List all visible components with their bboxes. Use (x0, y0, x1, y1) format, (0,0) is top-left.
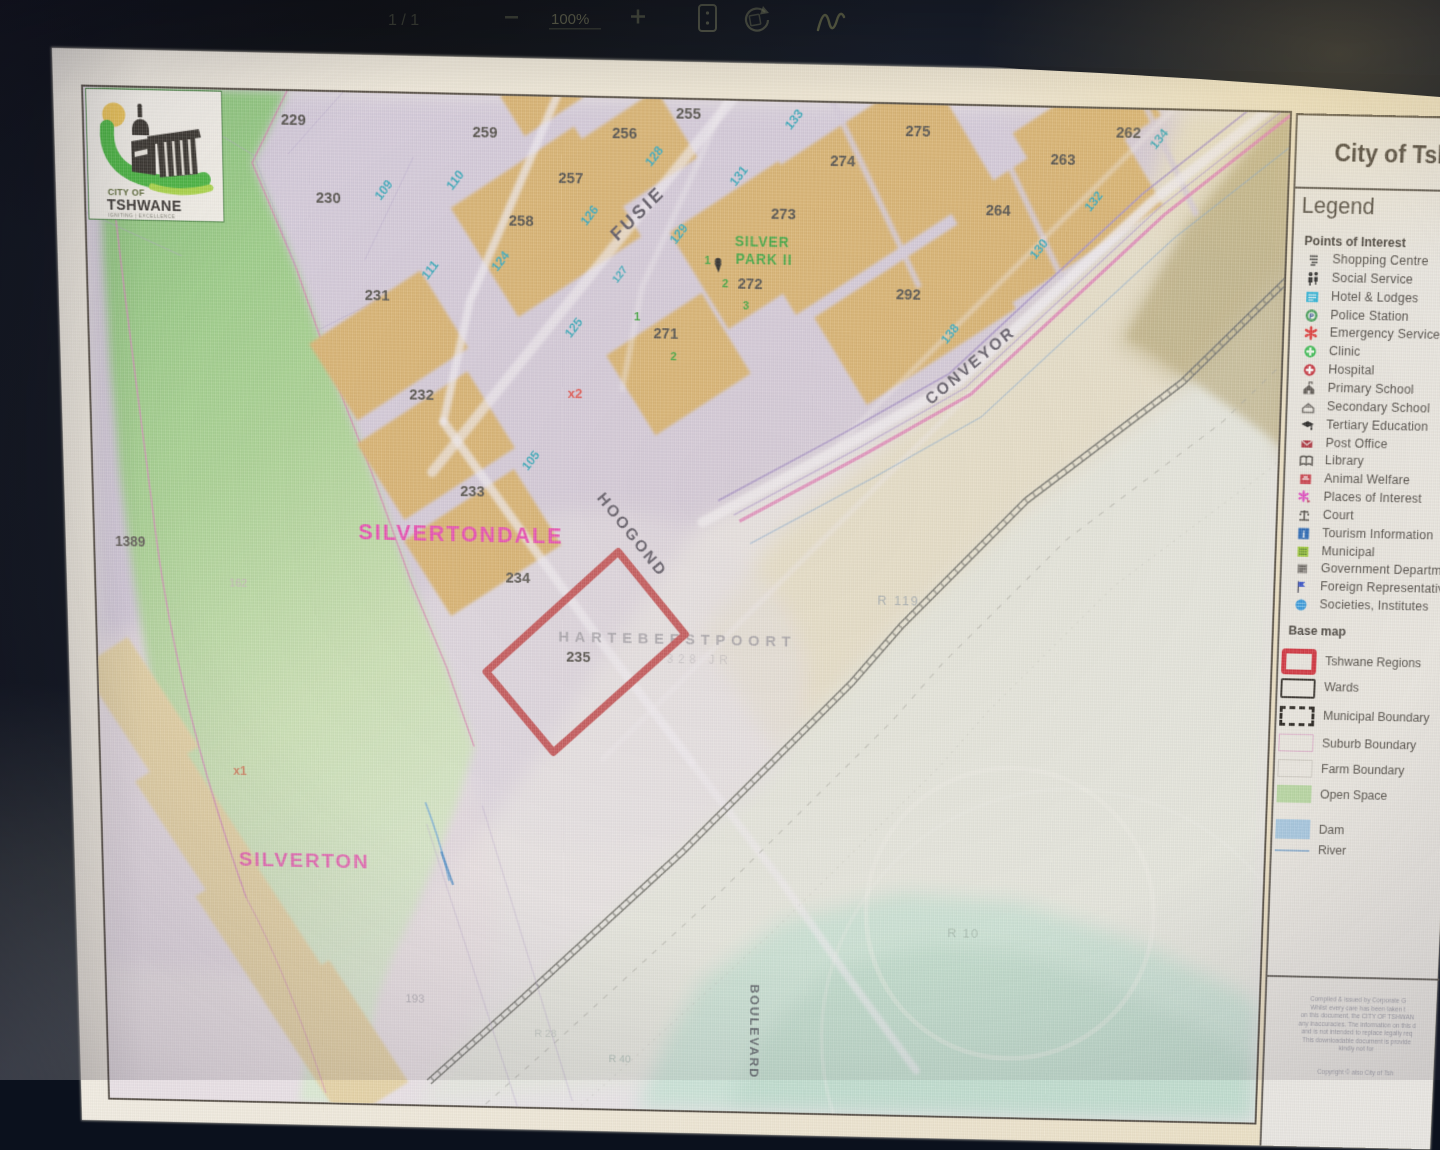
svg-text:1: 1 (704, 253, 711, 267)
svg-text:258: 258 (509, 213, 534, 231)
svg-text:x1: x1 (233, 763, 247, 778)
svg-text:328 JR: 328 JR (667, 652, 733, 667)
svg-text:3: 3 (743, 298, 750, 312)
svg-text:2: 2 (670, 349, 677, 363)
svg-text:1: 1 (634, 309, 641, 323)
svg-text:256: 256 (612, 125, 637, 143)
svg-text:292: 292 (896, 286, 921, 304)
svg-text:R 10: R 10 (947, 926, 979, 941)
svg-text:231: 231 (365, 287, 390, 305)
svg-text:230: 230 (316, 190, 341, 208)
svg-text:SILVER: SILVER (735, 234, 790, 251)
svg-text:R 119: R 119 (877, 593, 920, 608)
svg-text:BOULEVARD: BOULEVARD (747, 984, 762, 1079)
svg-text:263: 263 (1050, 151, 1076, 169)
svg-text:257: 257 (558, 170, 583, 188)
svg-text:1389: 1389 (115, 534, 146, 550)
svg-text:272: 272 (738, 276, 763, 294)
svg-text:SILVERTON: SILVERTON (239, 847, 370, 873)
svg-text:162: 162 (229, 578, 247, 590)
svg-text:PARK II: PARK II (736, 252, 793, 269)
svg-text:262: 262 (1116, 124, 1141, 142)
svg-text:P: P (1309, 312, 1314, 321)
svg-text:233: 233 (460, 483, 485, 500)
svg-text:R 40: R 40 (609, 1054, 631, 1066)
svg-text:IGNITING | EXCELLENCE: IGNITING | EXCELLENCE (108, 213, 175, 220)
svg-text:273: 273 (771, 206, 796, 224)
svg-text:271: 271 (653, 325, 678, 342)
svg-text:264: 264 (986, 202, 1012, 220)
svg-text:2: 2 (722, 276, 729, 290)
svg-text:232: 232 (409, 387, 434, 404)
svg-text:x2: x2 (568, 385, 583, 401)
svg-text:234: 234 (506, 570, 531, 587)
svg-text:274: 274 (830, 153, 856, 171)
svg-text:193: 193 (405, 992, 424, 1005)
svg-text:275: 275 (905, 123, 931, 141)
svg-text:259: 259 (472, 124, 497, 142)
svg-text:R 28: R 28 (535, 1028, 557, 1040)
svg-text:SILVERTONDALE: SILVERTONDALE (358, 519, 563, 549)
svg-text:229: 229 (281, 111, 307, 129)
svg-text:235: 235 (566, 649, 591, 666)
svg-text:TSHWANE: TSHWANE (107, 196, 182, 215)
